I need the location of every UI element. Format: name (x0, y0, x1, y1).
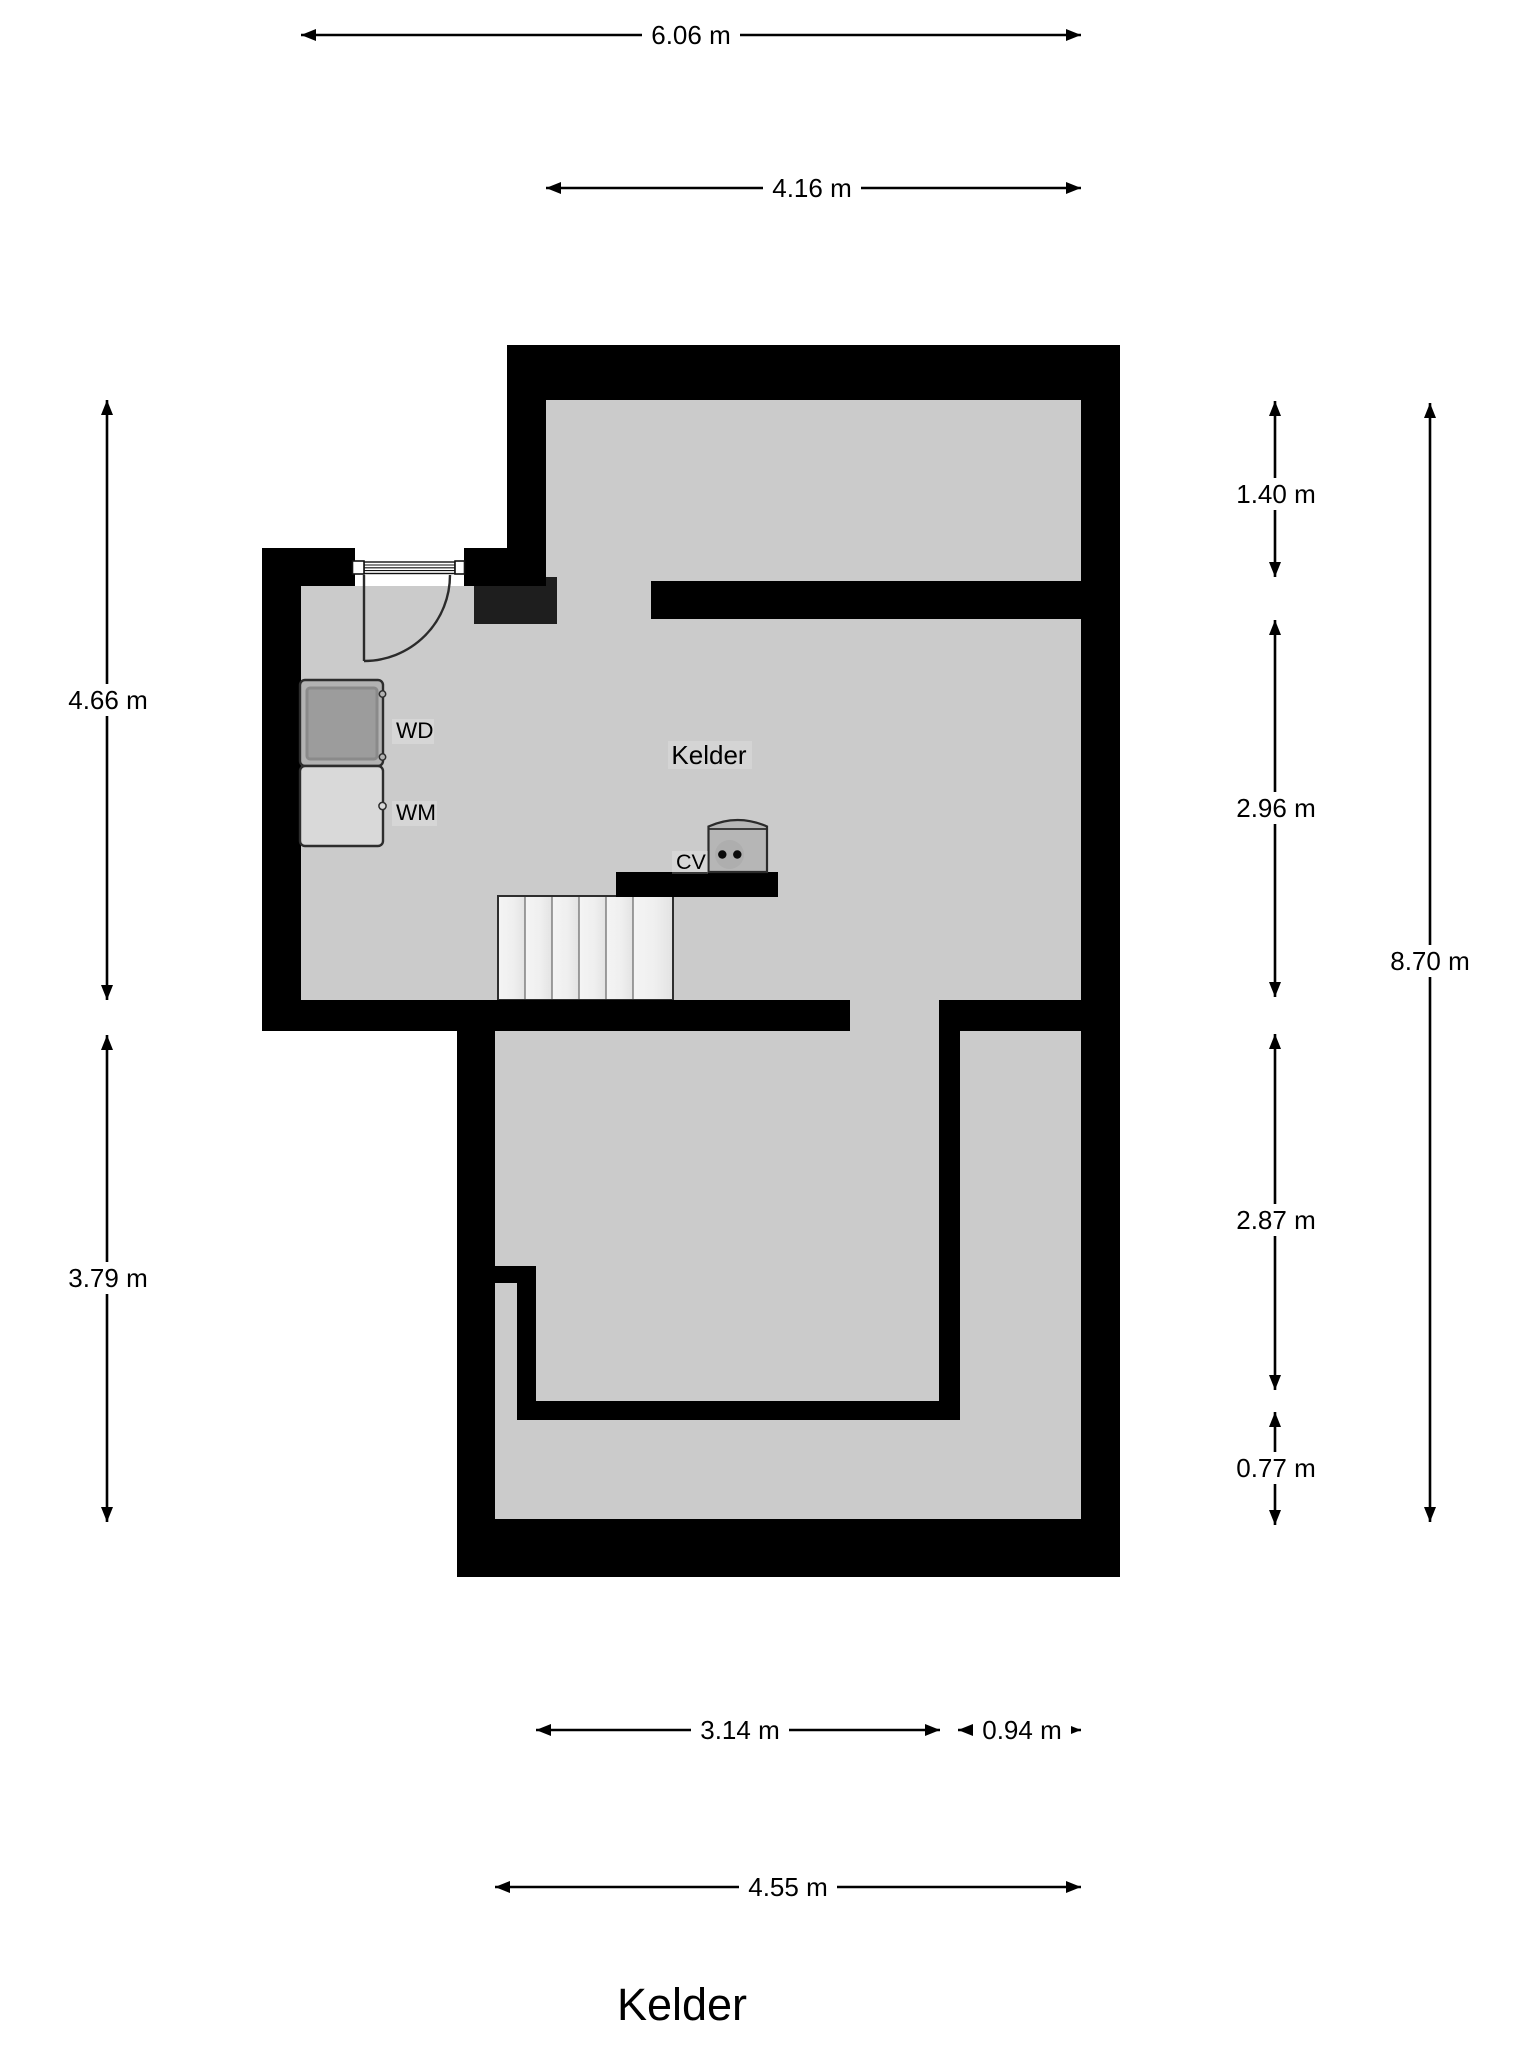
svg-text:0.77 m: 0.77 m (1236, 1453, 1316, 1483)
svg-text:4.16 m: 4.16 m (772, 173, 852, 203)
svg-text:2.87 m: 2.87 m (1236, 1205, 1316, 1235)
svg-text:Kelder: Kelder (617, 1979, 747, 2030)
svg-text:8.70 m: 8.70 m (1390, 946, 1470, 976)
svg-text:Kelder: Kelder (671, 740, 746, 770)
svg-text:WD: WD (396, 718, 434, 743)
svg-text:0.94 m: 0.94 m (982, 1715, 1062, 1745)
svg-text:4.66 m: 4.66 m (68, 685, 148, 715)
svg-text:CV: CV (676, 850, 707, 874)
svg-text:6.06 m: 6.06 m (651, 20, 731, 50)
svg-text:4.55 m: 4.55 m (748, 1872, 828, 1902)
svg-text:WM: WM (396, 800, 436, 825)
svg-text:3.14 m: 3.14 m (700, 1715, 780, 1745)
svg-text:1.40 m: 1.40 m (1236, 479, 1316, 509)
svg-text:3.79 m: 3.79 m (68, 1263, 148, 1293)
svg-text:2.96 m: 2.96 m (1236, 793, 1316, 823)
